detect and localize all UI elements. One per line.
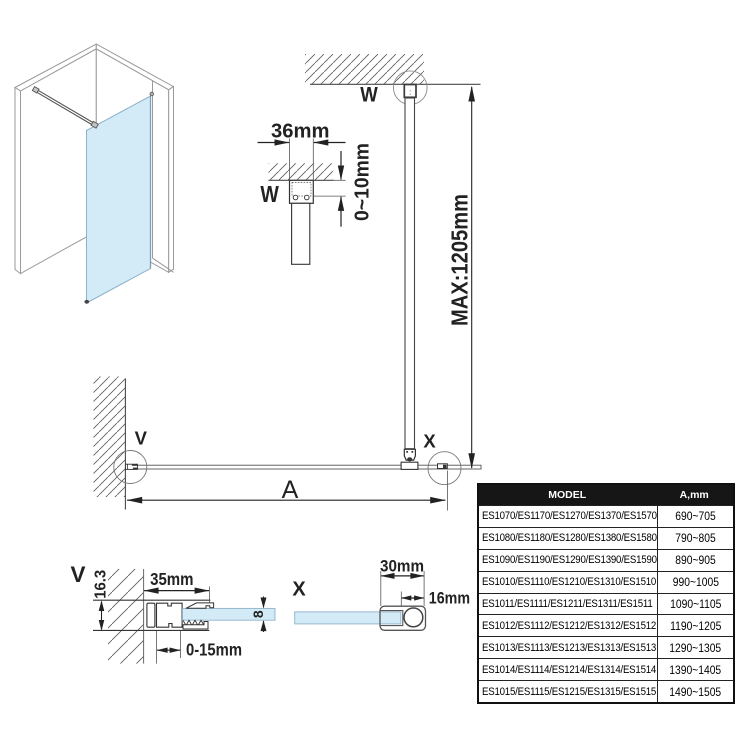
svg-text:35mm: 35mm <box>150 569 193 589</box>
svg-text:A: A <box>282 476 299 504</box>
svg-text:16.3: 16.3 <box>93 570 110 599</box>
svg-text:X: X <box>292 578 306 600</box>
svg-text:8: 8 <box>250 610 266 618</box>
svg-text:0~10mm: 0~10mm <box>351 143 374 221</box>
svg-text:16mm: 16mm <box>429 589 470 607</box>
svg-text:0-15mm: 0-15mm <box>186 640 242 660</box>
svg-text:W: W <box>360 82 378 106</box>
svg-text:MAX:1205mm: MAX:1205mm <box>447 194 473 326</box>
svg-text:30mm: 30mm <box>380 558 424 576</box>
svg-text:W: W <box>260 181 279 207</box>
svg-text:V: V <box>135 427 148 448</box>
svg-text:V: V <box>70 562 85 587</box>
svg-text:36mm: 36mm <box>271 120 330 142</box>
svg-text:X: X <box>423 431 436 452</box>
